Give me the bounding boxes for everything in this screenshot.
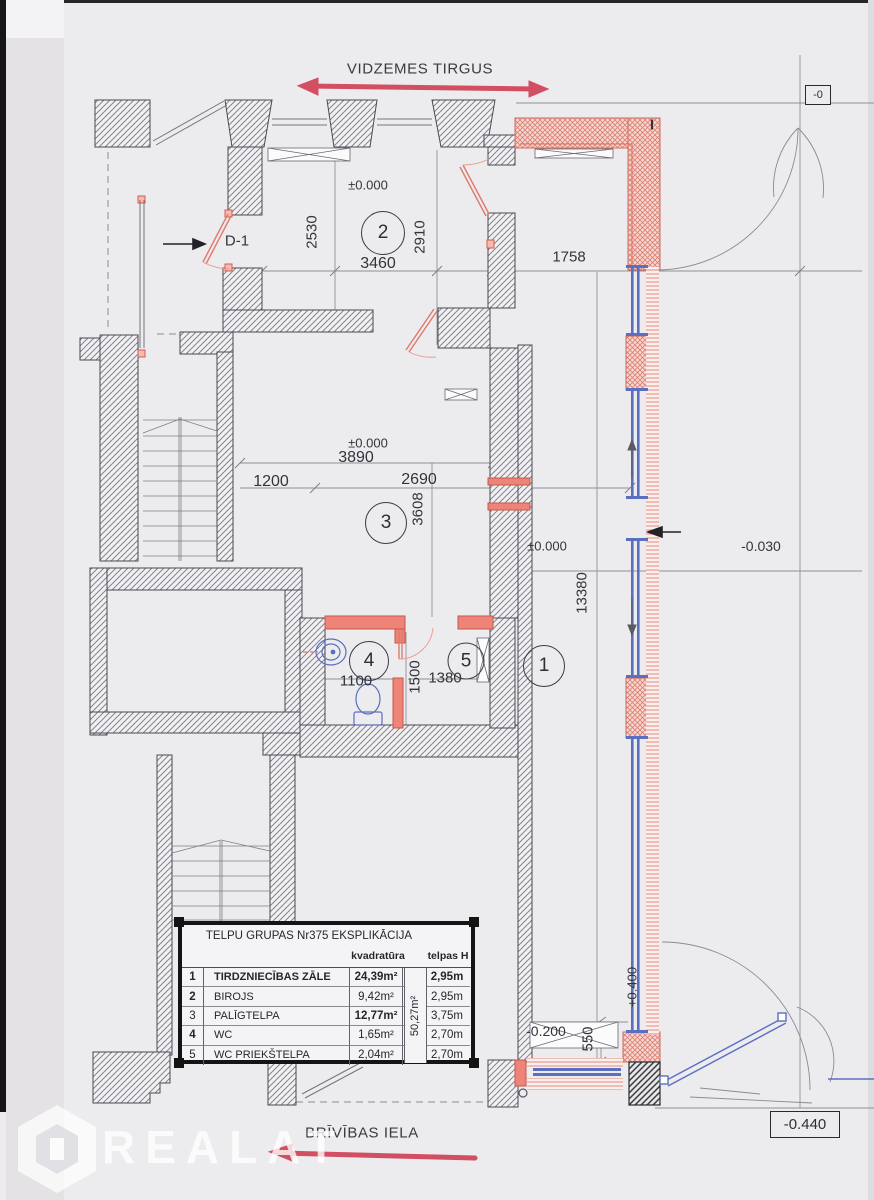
room-circle-4: 4	[349, 641, 389, 681]
dim-1500: 1500	[407, 660, 424, 693]
crossed-box-window-symbols	[268, 148, 618, 1048]
dim-550: 550	[580, 1026, 597, 1051]
table-row: 3 PALĪGTELPA 12,77m² 3,75m	[182, 1007, 471, 1026]
dim-1200: 1200	[253, 473, 289, 491]
explication-table: TELPU GRUPAS Nr375 EKSPLIKĀCIJA kvadratū…	[178, 921, 475, 1064]
level-entry-step: +0.400	[625, 967, 640, 1007]
dim-1758: 1758	[552, 249, 585, 266]
staircase-lower	[172, 840, 270, 924]
entrance-door-blue	[660, 1013, 874, 1086]
street-door-swings	[658, 128, 834, 1103]
table-title: TELPU GRUPAS Nr375 EKSPLIKĀCIJA	[194, 930, 424, 942]
bottom-facade-band	[515, 1058, 623, 1097]
column-header-height: telpas H	[425, 950, 471, 962]
dim-2530: 2530	[304, 215, 321, 248]
level-room2: ±0.000	[348, 178, 388, 193]
room-circle-5: 5	[448, 643, 485, 680]
dim-13380: 13380	[574, 572, 591, 614]
dim-3460: 3460	[360, 255, 396, 273]
table-row: 4 WC 1,65m² 2,70m	[182, 1026, 471, 1045]
door-label-d1: D-1	[225, 233, 249, 250]
room-circle-2: 2	[361, 211, 405, 255]
dim-3890: 3890	[338, 449, 374, 467]
level-rear: -0.200	[526, 1023, 566, 1039]
dim-2690: 2690	[401, 471, 437, 489]
table-total-area-cell: 50,27m²	[404, 968, 427, 1063]
table-header: TELPU GRUPAS Nr375 EKSPLIKĀCIJA kvadratū…	[182, 925, 471, 968]
level-corner-top-box: -0	[805, 85, 831, 105]
street-name-bottom: BRĪVĪBAS IELA	[305, 1125, 419, 1142]
level-hall: ±0.000	[527, 539, 567, 554]
table-row: 5 WC PRIEKŠTELPA 2,04m² 2,70m	[182, 1046, 471, 1065]
staircase-upper	[143, 417, 217, 561]
section-marker: I	[650, 117, 654, 134]
scanned-floor-plan-page: VIDZEMES TIRGUS BRĪVĪBAS IELA D-1 I ±0.0…	[0, 0, 874, 1200]
level-street-right: -0.030	[741, 538, 781, 554]
room-circle-1: 1	[523, 645, 565, 687]
column-header-area: kvadratūra	[350, 950, 406, 962]
table-row: 2 BIROJS 9,42m² 2,95m	[182, 987, 471, 1006]
dim-3608: 3608	[410, 492, 427, 525]
table-row: 1 TIRDZNIECĪBAS ZĀLE 24,39m² 2,95m	[182, 968, 471, 987]
level-corner-bottom-box: -0.440	[770, 1111, 840, 1138]
street-name-top: VIDZEMES TIRGUS	[347, 61, 493, 78]
window-swing-arrow-icon	[628, 440, 636, 635]
corner-pier-block	[629, 1062, 660, 1105]
room-circle-3: 3	[365, 502, 407, 544]
dim-2910: 2910	[412, 220, 429, 253]
